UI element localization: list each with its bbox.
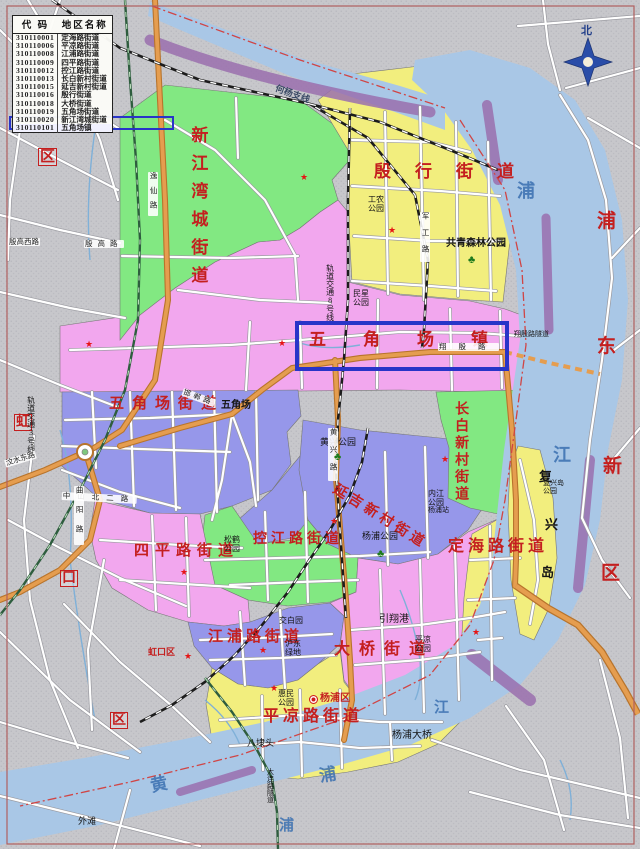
label-fuxing-fu: 复 [539,470,552,484]
label-metro-line3: 轨道交通3号线 [26,396,35,453]
label-wujiaochang-place: 五角场 [221,401,251,412]
label-dalian-rd-tunnel: 大连路隧道 [266,768,274,803]
label-waitan: 外滩 [78,817,96,827]
government-star-icon: ★ [388,226,396,235]
label-pudong-xin: 新 [603,457,622,478]
district-map-page: 新江湾城街道殷行街道五角场镇五角场街道长白新村街道延吉新村街道控江路街道四平路街… [0,0,640,849]
label-yangpu-bridge: 杨浦大桥 [392,731,432,742]
label-river-pu-south: 浦 [318,765,338,786]
label-gongnong-park: 工农 公园 [368,196,384,213]
government-star-icon: ★ [472,628,480,637]
label-hongkou-kou: 口 [60,570,78,587]
label-river-jiang-south: 江 [434,700,449,716]
label-kongjiang-subdistrict: 控江路街道 [253,532,343,547]
legend-row: 310110101五角场镇 [13,124,113,133]
label-yangpu-gov: 杨浦区 [320,694,350,705]
legend-area-name: 五角场镇 [58,124,113,133]
compass-north-label: 北 [581,26,592,38]
label-river-pu-north: 浦 [517,182,535,201]
label-jiaobai-garden: 交白园 [279,617,303,626]
government-star-icon: ★ [441,455,449,464]
label-river-huang: 黄 [149,774,169,795]
label-metro-line8: 轨道交通8号线 [325,264,334,321]
government-star-icon: ★ [278,339,286,348]
label-gongqing-forest-park: 共青森林公园 [446,239,506,250]
legend-header-code: 代 码 [13,16,58,34]
government-star-icon: ★ [270,684,278,693]
government-star-icon: ★ [180,568,188,577]
legend-code: 310110101 [13,124,58,133]
tree-icon: ♣ [468,255,475,266]
label-neijiang-park: 内江 公园 [428,490,444,507]
label-yangpu-park: 杨浦公园 [362,532,398,542]
government-star-icon: ★ [85,340,93,349]
label-river-pu-sw: 浦 [279,818,294,834]
label-yinxiang-port: 引翔港 [379,615,409,626]
label-dinghai-subdistrict: 定海路街道 [448,538,548,555]
chip-yixian-rd: 逸仙路 [148,172,158,216]
chip-jungong-rd: 军工路 [420,212,430,262]
tree-icon: ♣ [334,452,341,463]
government-star-icon: ★ [259,646,267,655]
chip-yingao-rd: 殷高路 [84,240,124,248]
label-pudong-dong: 东 [597,337,616,358]
label-pingliang-subdistrict: 平凉路街道 [263,708,363,725]
label-pudong-pu: 浦 [597,212,616,233]
government-star-icon: ★ [184,652,192,661]
chip-quyang-rd: 曲阳路 [74,486,84,545]
label-songhe-park: 松鹤 公园 [224,536,240,553]
label-baoshan-qu: 区 [38,148,57,166]
label-yangpu-station: 杨浦站 [428,507,449,515]
label-fuxing-dao: 岛 [541,566,554,580]
government-icon [309,695,318,704]
label-river-jiang-east: 江 [553,446,571,465]
label-hudong-green: 沪东 绿地 [285,640,301,657]
label-xinjiangwancheng-subdistrict: 新江湾城街道 [188,126,206,294]
legend-header-name: 地区名称 [58,16,113,34]
label-huimin-park: 惠民 公园 [278,690,294,707]
label-pingliang-park: 平凉 公园 [415,636,431,653]
wujiaochang-town-highlight-box [295,321,509,371]
label-hongkou-qu: 区 [110,712,128,729]
label-fuxing-xing: 兴 [545,518,558,532]
government-star-icon: ★ [300,173,308,182]
label-badaitou: 八埭头 [247,739,274,749]
label-xiangyin-tunnel: 翔殷路隧道 [514,331,549,339]
chip-yingaoxi-rd: 殷高西路 [8,238,40,246]
label-pudong-qu: 区 [601,564,620,585]
legend-table: 代 码 地区名称 310110001定海路街道310110006平凉路街道310… [12,15,113,133]
tree-icon: ♣ [377,549,384,560]
government-star-icon: ★ [330,517,338,526]
label-minxing-park: 民星 公园 [353,290,369,307]
label-changbai-subdistrict: 长白新村街道 [453,401,468,503]
label-yinhang-subdistrict: 殷行街道 [374,163,538,181]
label-hongkou-gov: 虹口区 [148,648,175,658]
